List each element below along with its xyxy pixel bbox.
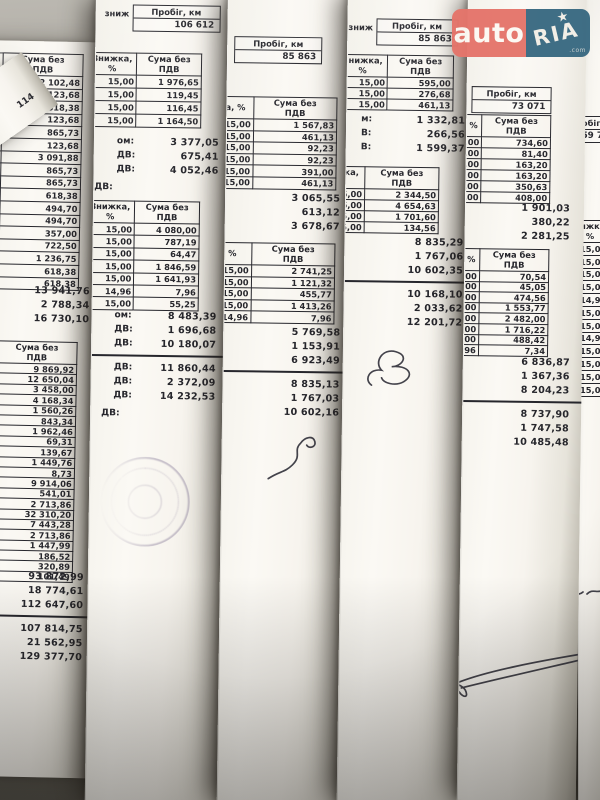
handwritten-signature — [457, 640, 587, 702]
totals-row: 1 153,91 — [232, 338, 340, 354]
totals-value: 1 767,03 — [291, 392, 340, 404]
totals-value: 129 377,70 — [20, 650, 83, 662]
table-row: 15,00461,13 — [217, 176, 336, 190]
mileage-box: Пробіг, км106 612 — [132, 5, 220, 33]
amount-cell: 276,68 — [387, 88, 453, 100]
totals-value: 1 153,91 — [291, 340, 340, 352]
totals-value: 112 647,60 — [21, 598, 84, 610]
invoice-table: ижка, %Сума без ПДВ15,00734,6015,0081,40… — [457, 114, 552, 205]
mileage-label: Пробіг, км — [473, 87, 551, 101]
totals-value: 6 836,87 — [521, 356, 570, 368]
ria-logo-right: ★ RIA .com — [526, 9, 590, 57]
totals-value: 12 201,72 — [407, 316, 463, 328]
totals-value: 14 232,53 — [160, 390, 216, 402]
totals-value: 8 483,39 — [168, 311, 217, 323]
totals-value: 10 602,16 — [284, 406, 340, 418]
totals-divider-line — [0, 614, 101, 619]
mileage-box: Пробіг, км85 863 — [234, 36, 322, 64]
ria-logo-com: .com — [569, 47, 586, 54]
mileage-header: знижПробіг, км85 863 — [348, 18, 458, 47]
totals-value: 3 377,05 — [170, 137, 219, 149]
totals-value: 10 180,07 — [161, 338, 217, 350]
totals-value: 2 033,62 — [414, 302, 463, 314]
discount-cell: 14,96 — [85, 284, 134, 297]
sum-without-vat-header: Сума без ПДВ — [388, 55, 454, 78]
totals-value: 16 730,10 — [34, 313, 90, 325]
mileage-header: Пробіг, км73 071 — [471, 86, 551, 114]
totals-label: ДВ: — [116, 164, 135, 174]
discount-cell: 15,00 — [85, 260, 134, 273]
amount-cell: 461,13 — [252, 177, 336, 190]
totals-label: ом: — [117, 136, 134, 146]
totals-value: 8 835,13 — [291, 378, 340, 390]
amount-cell: 4 080,00 — [134, 223, 199, 236]
amount-cell: 1 641,93 — [134, 273, 199, 286]
handwritten-signature — [578, 578, 600, 608]
sum-without-vat-header: Сума без ПДВ — [253, 97, 337, 120]
sum-without-vat-header: Сума без ПДВ — [135, 201, 200, 224]
mileage-box: Пробіг, км73 071 — [471, 86, 551, 114]
totals-value: 10 602,35 — [407, 264, 463, 276]
totals-label: В: — [361, 142, 372, 152]
signature-stroke — [578, 589, 600, 598]
amount-cell: 595,00 — [388, 77, 454, 89]
totals-row: 10 485,48 — [465, 434, 569, 449]
totals-row: 1 901,03 — [468, 200, 570, 215]
totals-row: 129 377,70 — [0, 648, 82, 664]
totals-value: 13 941,76 — [34, 285, 90, 297]
mileage-value: 106 612 — [133, 19, 219, 32]
table-row: 15,00163,20 — [457, 158, 550, 171]
amount-cell: 1 164,50 — [136, 114, 201, 128]
table-row: 15,004 654,63 — [337, 199, 439, 212]
totals-row: 10 168,10 — [359, 286, 463, 301]
sum-without-vat-header: Сума без ПДВ — [365, 167, 439, 190]
totals-block: 6 836,871 367,368 204,23 — [465, 354, 570, 397]
table-header-row: Знижка, %Сума без ПДВ — [337, 54, 454, 78]
discount-cell: 15,00 — [85, 222, 134, 235]
discount-cell: 15,00 — [87, 113, 136, 127]
table-row: 15,0081,40 — [457, 147, 551, 160]
invoice-table: ВЗнижка, %Сума без ПДВ70,0015,001 976,65… — [85, 51, 202, 128]
invoice-table: Знижка, %Сума без ПДВ15,002 344,5015,004… — [337, 166, 440, 235]
mileage-value: 73 071 — [472, 100, 550, 113]
totals-row: 6 923,49 — [232, 352, 340, 368]
totals-row: м:1 332,81 — [361, 112, 465, 127]
totals-value: 11 860,44 — [160, 362, 216, 374]
totals-value: 8 204,23 — [521, 384, 570, 396]
amount-cell: 7,96 — [250, 311, 334, 324]
table-row: 15,0070,54 — [457, 270, 549, 282]
table-row: ,0115,00461,13 — [337, 98, 453, 111]
discount-cell: 15,00 — [87, 100, 136, 114]
table-row: 15,002 344,50 — [337, 188, 439, 201]
amount-cell: 461,13 — [387, 99, 453, 111]
discount-cell: 15,00 — [87, 87, 136, 101]
discount-header: Знижка, % — [88, 52, 137, 75]
totals-label: ДВ: — [113, 390, 132, 400]
table-header-row: ВЗнижка, %Сума без ПДВ — [85, 52, 202, 76]
totals-label: ом: — [114, 310, 131, 320]
totals-block: 107 814,7521 562,95129 377,70 — [0, 620, 83, 664]
handwritten-signature — [357, 336, 422, 397]
totals-block: ДВ:11 860,44ДВ:2 372,09ДВ:14 232,53 — [113, 360, 216, 403]
amount-cell: 1 976,65 — [137, 75, 202, 89]
round-stamp — [99, 456, 190, 547]
table-row: 15,002 482,00 — [457, 312, 548, 324]
totals-value: 21 562,95 — [27, 637, 83, 649]
totals-row: ДВ:2 372,09 — [113, 374, 215, 389]
totals-row: 10 602,16 — [231, 404, 339, 420]
invoice-table: ка, %Сума без ПДВ15,002 741,2515,001 121… — [217, 242, 336, 325]
totals-value: 8 835,29 — [415, 236, 464, 248]
totals-row: 380,22 — [468, 214, 570, 229]
totals-value: 2 372,09 — [167, 377, 216, 389]
totals-row: 1 367,36 — [466, 368, 570, 383]
totals-value: 10 168,10 — [407, 288, 463, 300]
totals-block: 3 065,55613,123 678,67 — [234, 190, 341, 233]
totals-value: 1 767,06 — [415, 250, 464, 262]
table-row: 70,0015,001 164,50 — [85, 113, 201, 128]
auto-logo-text: auto — [454, 18, 525, 49]
totals-label: ДВ: — [117, 150, 136, 160]
totals-value: 1 696,68 — [168, 325, 217, 337]
totals-value: 107 814,75 — [20, 622, 83, 634]
totals-value: 675,41 — [180, 151, 218, 163]
table-header-row: ка, %Сума без ПДВ — [217, 242, 335, 266]
totals-divider-line — [85, 354, 224, 358]
table-row: 15,00488,42 — [457, 334, 548, 346]
totals-divider-line — [457, 400, 587, 404]
amount-cell: 1 846,59 — [134, 260, 199, 273]
table-row: 15,00474,56 — [457, 291, 549, 303]
totals-row: 3 678,67 — [234, 218, 340, 233]
table-header-row: зЗнижка, %Сума без ПДВ — [85, 200, 200, 224]
sum-without-vat-header: Сума без ПДВ — [482, 115, 551, 138]
totals-value: 1 332,81 — [416, 114, 465, 126]
sum-without-vat-header: Сума без ПДВ — [251, 243, 335, 266]
autoria-watermark: auto ★ RIA .com — [452, 9, 590, 57]
table-row: 15,00134,56 — [337, 221, 439, 234]
table-row: 15,001 701,60 — [337, 210, 439, 223]
totals-value: 266,56 — [427, 129, 465, 141]
amount-cell: 119,45 — [136, 88, 201, 102]
totals-block: 93 872,9918 774,61112 647,60 — [0, 568, 84, 612]
totals-block: ом:3 377,05ДВ:675,41ДВ:4 052,46 — [116, 134, 219, 177]
mileage-label: Пробіг, км — [133, 6, 219, 20]
sum-without-vat-header: Сума без ПДВ — [479, 249, 548, 272]
discount-header: Знижка, % — [86, 200, 135, 223]
totals-row: ДВ:4 052,46 — [116, 162, 218, 177]
mileage-header: Пробіг, км85 863 — [234, 36, 322, 64]
ria-logo-text: RIA — [531, 17, 581, 51]
totals-label: ДВ: — [114, 338, 133, 348]
text-fragment: ДВ: — [94, 182, 113, 192]
sum-without-vat-header: Сума без ПДВ — [137, 53, 202, 76]
totals-row: 1 767,06 — [359, 248, 463, 263]
amount-cell: 116,45 — [136, 101, 201, 115]
paper-sheet-e: Пробіг, км73 071ижка, %Сума без ПДВ15,00… — [457, 0, 587, 800]
signature-stroke — [458, 652, 584, 698]
totals-value: 1 747,58 — [520, 422, 569, 434]
totals-row: ом:8 483,39 — [114, 308, 216, 323]
discount-cell: 15,00 — [85, 272, 134, 285]
text-fragment: ДВ: — [101, 408, 120, 418]
totals-value: 1 367,36 — [521, 370, 570, 382]
totals-row: 10 602,35 — [359, 262, 463, 277]
signature-stroke — [268, 437, 315, 479]
table-row: 15,00734,60 — [457, 136, 551, 149]
totals-row: 2 281,25 — [468, 228, 570, 243]
totals-label: ДВ: — [114, 324, 133, 334]
totals-value: 10 485,48 — [513, 436, 569, 448]
totals-row: 8 737,90 — [465, 406, 569, 421]
totals-row: 8 835,13 — [231, 376, 339, 392]
totals-value: 4 052,46 — [170, 165, 219, 177]
totals-block: 10 168,102 033,6212 201,72 — [358, 286, 463, 329]
signature-stroke — [368, 351, 410, 386]
invoice-table: ижка, %Сума без ПДВ15,0070,5415,0045,051… — [457, 248, 550, 357]
totals-block: 5 769,581 153,916 923,49 — [232, 324, 341, 368]
totals-row: 16 730,10 — [0, 310, 89, 326]
totals-block: 8 835,291 767,0610 602,35 — [359, 234, 464, 277]
handwritten-signature — [262, 425, 335, 486]
table-header-row: ижка, %Сума без ПДВ — [457, 248, 549, 272]
totals-divider-line — [337, 280, 481, 284]
totals-value: 1 599,37 — [416, 142, 465, 154]
totals-row: В:1 599,37 — [361, 140, 465, 155]
mileage-left-fragment: зниж — [105, 8, 130, 18]
totals-row: 6 836,87 — [466, 354, 570, 369]
totals-value: 2 788,34 — [41, 299, 90, 311]
table-header-row: ижка, %Сума без ПДВ — [457, 114, 551, 138]
table-header-row: жка, %Сума без ПДВ — [0, 340, 77, 365]
totals-block: м:1 332,81В:266,56В:1 599,37 — [361, 112, 466, 155]
totals-label: ДВ: — [114, 376, 133, 386]
totals-row: 8 204,23 — [465, 382, 569, 397]
totals-value: 1 901,03 — [521, 202, 570, 214]
totals-divider-line — [217, 370, 362, 374]
text-fragment: 114 — [15, 92, 36, 111]
totals-value: 380,22 — [532, 216, 570, 228]
discount-cell: 15,00 — [85, 247, 134, 260]
table-header-row: Знижка, %Сума без ПДВ — [337, 166, 439, 190]
totals-block: 8 737,901 747,5810 485,48 — [465, 406, 570, 449]
mileage-label: Пробіг, км — [235, 37, 321, 51]
totals-value: 6 923,49 — [291, 354, 340, 366]
table-header-row: ижка, %Сума без ПДВ — [217, 96, 337, 120]
table-row: 14,967,96 — [217, 311, 334, 325]
totals-row: 112 647,60 — [0, 596, 83, 612]
totals-value: 3 065,55 — [291, 192, 340, 204]
totals-row: 3 065,55 — [234, 190, 340, 205]
photo-of-service-invoices: auto ★ RIA .com Знижка, %Сума без ПДВ15,… — [0, 0, 600, 800]
mileage-box: Пробіг, км85 863 — [376, 18, 458, 46]
amount-cell: 134,56 — [364, 222, 438, 234]
totals-row: 1 747,58 — [465, 420, 569, 435]
totals-row: 8 835,29 — [359, 234, 463, 249]
mileage-label: Пробіг, км — [377, 19, 457, 33]
table-row: 15,0045,05 — [457, 281, 549, 293]
table-row: 15,00163,20 — [457, 169, 550, 182]
table-row: 15,001 716,22 — [457, 323, 548, 335]
auto-logo-left: auto — [452, 9, 526, 57]
totals-block: 13 941,762 788,3416 730,10 — [0, 282, 90, 326]
totals-value: 93 872,99 — [28, 571, 84, 583]
invoice-table: ижка, %Сума без ПДВ15,001 567,8315,00461… — [217, 96, 338, 191]
amount-cell: 7,96 — [134, 285, 199, 298]
totals-row: В:266,56 — [361, 126, 465, 141]
mileage-value: 85 863 — [235, 50, 321, 63]
totals-row: 5 769,58 — [232, 324, 340, 340]
totals-row: 1 767,03 — [231, 390, 339, 406]
totals-value: 8 737,90 — [520, 408, 569, 420]
totals-row: 12 201,72 — [358, 314, 462, 329]
totals-value: 18 774,61 — [28, 585, 84, 597]
mileage-value: 85 863 — [377, 32, 457, 45]
totals-row: 613,12 — [234, 204, 340, 219]
totals-block: 8 835,131 767,0310 602,16 — [231, 376, 340, 420]
totals-block: 1 901,03380,222 281,25 — [468, 200, 571, 243]
table-row: 15,00350,63 — [457, 180, 550, 193]
amount-cell: 64,47 — [134, 248, 199, 261]
totals-label: м: — [361, 114, 372, 124]
totals-label: ДВ: — [114, 362, 133, 372]
invoice-table: Знижка, %Сума без ПДВ,0015,00595,00,0315… — [337, 54, 454, 112]
totals-value: 613,12 — [302, 207, 340, 219]
totals-row: ДВ:10 180,07 — [114, 336, 216, 351]
totals-row: ДВ:1 696,68 — [114, 322, 216, 337]
totals-row: ом:3 377,05 — [117, 134, 219, 149]
totals-row: ДВ:11 860,44 — [114, 360, 216, 375]
discount-cell: 15,00 — [87, 74, 136, 88]
discount-cell: 15,00 — [85, 235, 134, 248]
totals-label: В: — [361, 128, 372, 138]
totals-block: ом:8 483,39ДВ:1 696,68ДВ:10 180,07 — [114, 308, 217, 351]
totals-row: ДВ:675,41 — [117, 148, 219, 163]
totals-value: 5 769,58 — [292, 326, 341, 338]
sum-without-vat-header: Сума без ПДВ — [0, 341, 77, 365]
totals-value: 3 678,67 — [291, 220, 340, 232]
totals-row: 2 033,62 — [358, 300, 462, 315]
totals-value: 2 281,25 — [521, 230, 570, 242]
invoice-table: жка, %Сума без ПДВ15,009 869,9215,0012 6… — [0, 339, 78, 583]
totals-row: ДВ:14 232,53 — [113, 388, 215, 403]
mileage-left-fragment: зниж — [348, 22, 373, 32]
mileage-header: знижПробіг, км106 612 — [104, 4, 220, 33]
invoice-table: зЗнижка, %Сума без ПДВ35,0015,004 080,00… — [85, 199, 200, 311]
amount-cell: 787,19 — [134, 236, 199, 249]
